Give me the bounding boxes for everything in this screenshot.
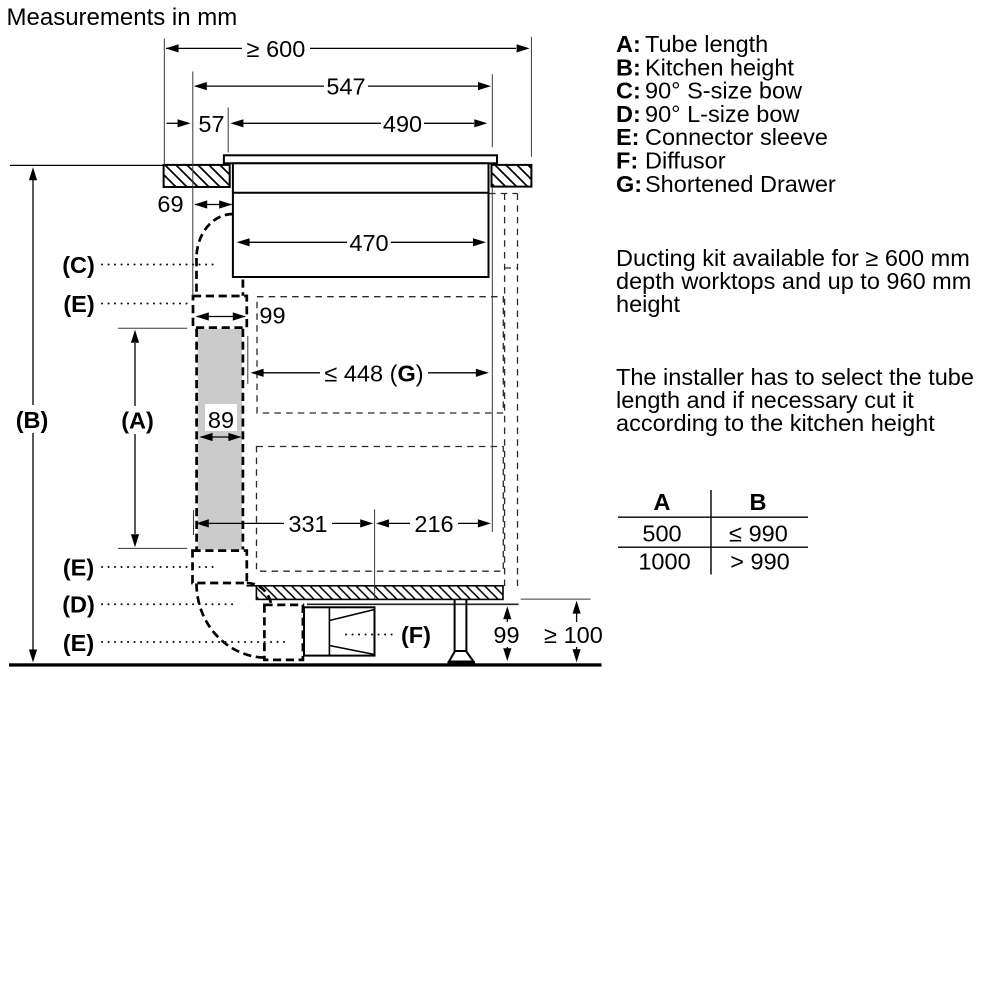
svg-text:height: height	[616, 291, 680, 317]
svg-text:F:: F:	[616, 148, 638, 174]
svg-text:99: 99	[493, 622, 519, 648]
svg-text:(B): (B)	[16, 407, 49, 433]
svg-text:C:: C:	[616, 78, 641, 104]
svg-text:G:: G:	[616, 171, 642, 197]
svg-text:90° S-size bow: 90° S-size bow	[645, 78, 803, 104]
svg-text:89: 89	[208, 407, 234, 433]
svg-text:≤ 448 (G): ≤ 448 (G)	[324, 360, 423, 386]
svg-text:A: A	[654, 489, 671, 515]
svg-text:E:: E:	[616, 124, 640, 150]
svg-text:Shortened Drawer: Shortened Drawer	[645, 171, 836, 197]
svg-text:99: 99	[259, 303, 285, 329]
svg-text:69: 69	[157, 191, 183, 217]
svg-text:500: 500	[642, 521, 681, 547]
svg-text:90° L-size bow: 90° L-size bow	[645, 101, 800, 127]
svg-text:57: 57	[198, 111, 224, 137]
svg-text:490: 490	[383, 111, 422, 137]
svg-text:(E): (E)	[63, 630, 94, 656]
svg-text:1000: 1000	[638, 549, 690, 575]
svg-text:(E): (E)	[63, 291, 94, 317]
svg-text:D:: D:	[616, 101, 641, 127]
svg-text:216: 216	[414, 511, 453, 537]
svg-text:Tube length: Tube length	[645, 31, 768, 57]
svg-text:470: 470	[349, 230, 388, 256]
svg-text:≥ 100: ≥ 100	[544, 622, 603, 648]
svg-text:(D): (D)	[62, 592, 95, 618]
svg-text:(F): (F)	[401, 622, 431, 648]
svg-text:> 990: > 990	[730, 549, 789, 575]
svg-text:(A): (A)	[121, 408, 154, 434]
svg-text:(E): (E)	[63, 555, 94, 581]
svg-text:Connector sleeve: Connector sleeve	[645, 124, 828, 150]
svg-text:≥ 600: ≥ 600	[247, 36, 306, 62]
svg-text:Diffusor: Diffusor	[645, 148, 726, 174]
svg-text:≤ 990: ≤ 990	[729, 521, 788, 547]
svg-text:B: B	[750, 489, 767, 515]
svg-text:Kitchen height: Kitchen height	[645, 54, 794, 80]
svg-text:B:: B:	[616, 54, 641, 80]
svg-text:(C): (C)	[62, 252, 95, 278]
svg-text:547: 547	[326, 74, 365, 100]
svg-text:331: 331	[288, 511, 327, 537]
svg-text:A:: A:	[616, 31, 641, 57]
svg-text:Measurements in mm: Measurements in mm	[7, 4, 238, 31]
svg-text:according to the kitchen heigh: according to the kitchen height	[616, 410, 935, 436]
